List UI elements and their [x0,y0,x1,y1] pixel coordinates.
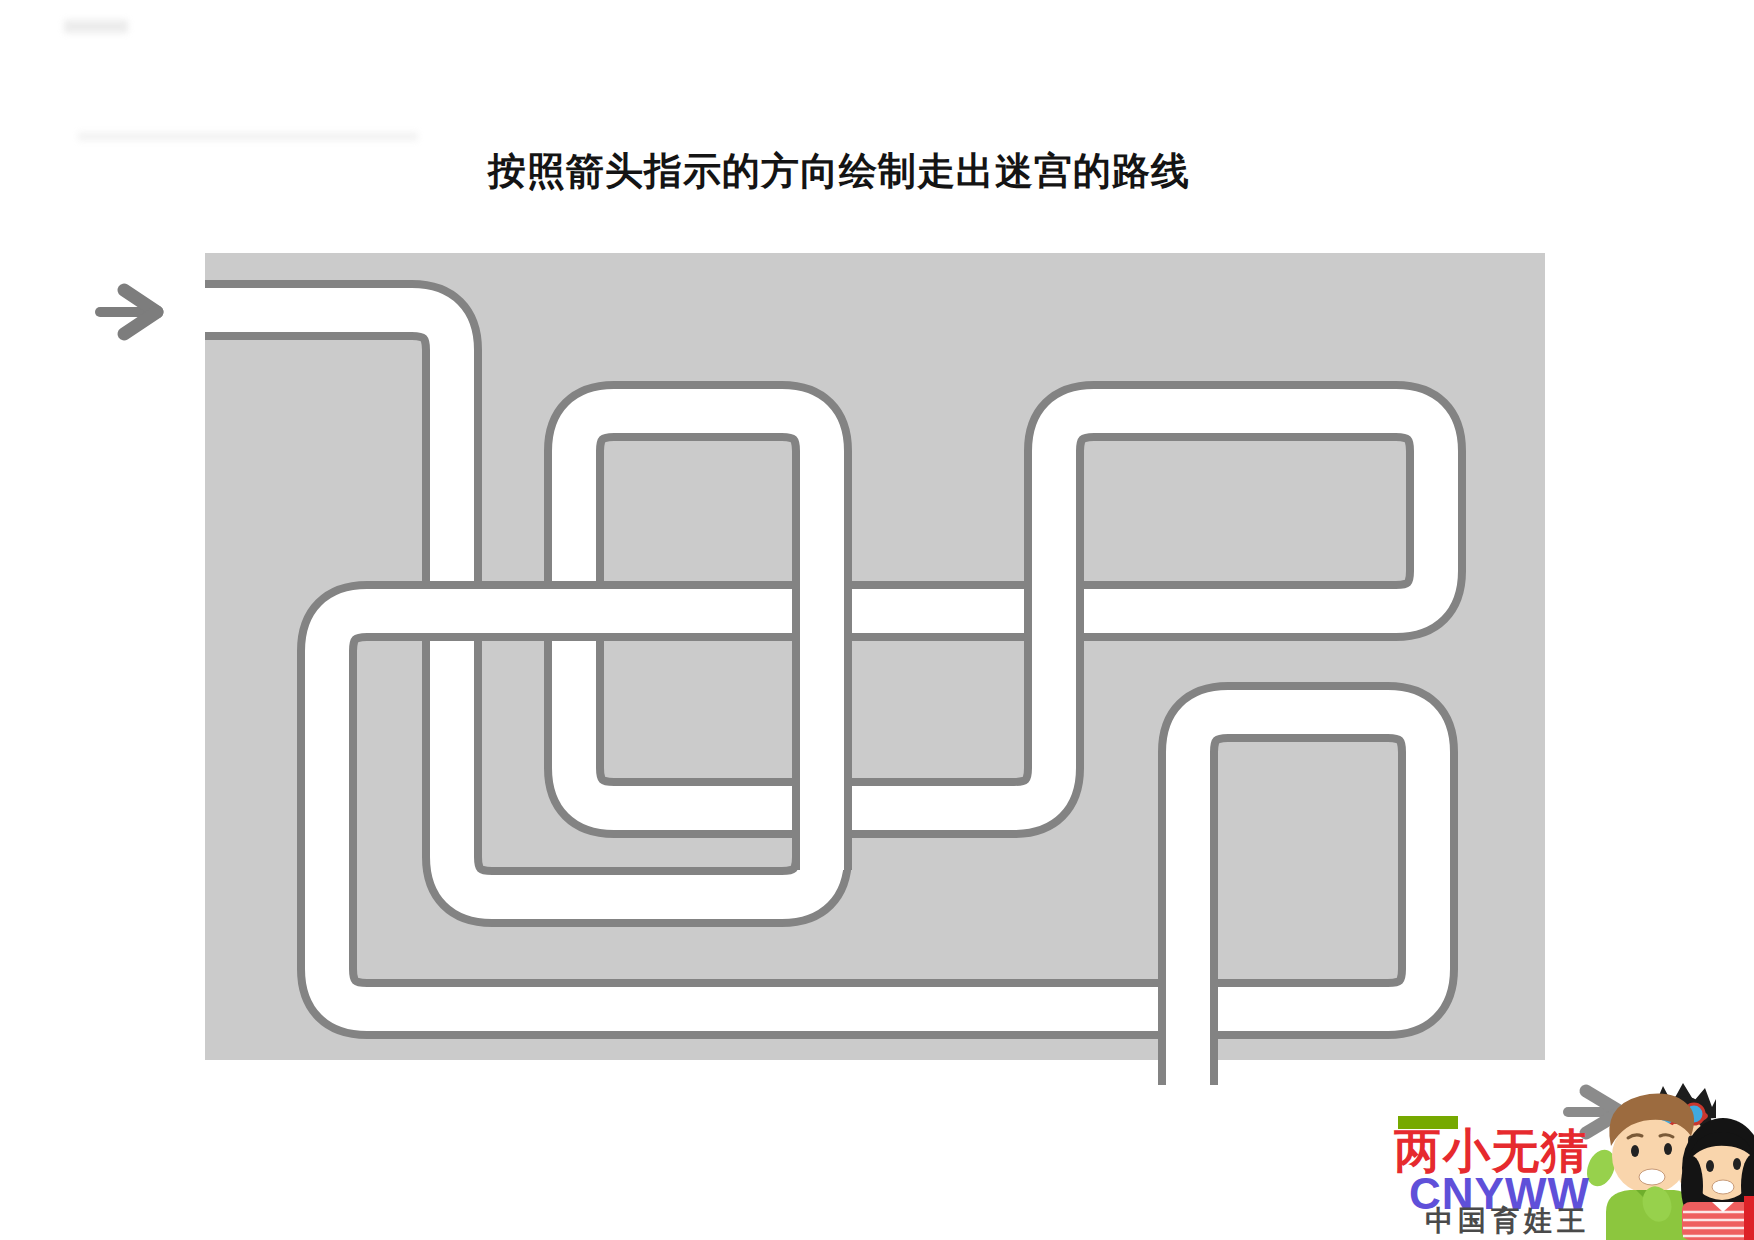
cartoon-woman [1681,1118,1754,1240]
maze-entry-arrow-icon [100,290,157,334]
maze-canvas[interactable] [0,0,1754,1240]
watermark-red-bar [1744,1196,1754,1240]
watermark-tagline: 中国育娃王 [1425,1207,1590,1235]
worksheet-page: 按照箭头指示的方向绘制走出迷宫的路线 [0,0,1754,1240]
maze-pipes [205,253,1545,1085]
watermark-brand-cn: 两小无猜 [1394,1127,1590,1174]
